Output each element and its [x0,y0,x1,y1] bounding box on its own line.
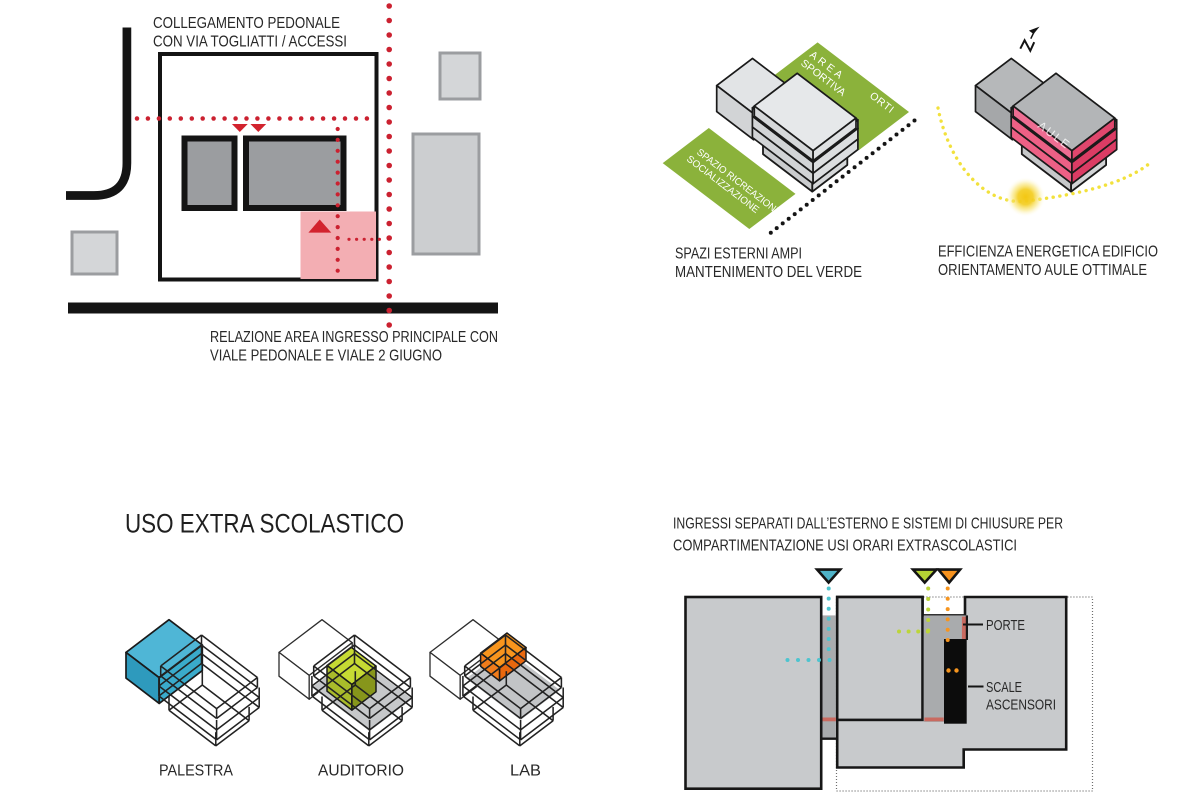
svg-text:AUDITORIO: AUDITORIO [318,763,404,780]
svg-text:INGRESSI SEPARATI DALL’ESTERNO: INGRESSI SEPARATI DALL’ESTERNO E SISTEMI… [673,516,1063,533]
svg-text:COLLEGAMENTO PEDONALE: COLLEGAMENTO PEDONALE [153,15,340,32]
svg-text:PORTE: PORTE [986,617,1025,634]
svg-text:ORIENTAMENTO AULE OTTIMALE: ORIENTAMENTO AULE OTTIMALE [938,262,1147,279]
svg-text:SCALE: SCALE [986,679,1022,696]
svg-text:VIALE PEDONALE E VIALE 2 GIUGN: VIALE PEDONALE E VIALE 2 GIUGNO [210,348,442,365]
svg-text:PALESTRA: PALESTRA [159,763,233,780]
svg-text:MANTENIMENTO DEL VERDE: MANTENIMENTO DEL VERDE [675,264,862,281]
svg-text:USO EXTRA SCOLASTICO: USO EXTRA SCOLASTICO [125,509,404,539]
svg-text:CON VIA TOGLIATTI / ACCESSI: CON VIA TOGLIATTI / ACCESSI [153,34,347,51]
svg-text:SPAZI ESTERNI AMPI: SPAZI ESTERNI AMPI [675,246,802,263]
svg-text:LAB: LAB [510,763,541,780]
svg-text:ASCENSORI: ASCENSORI [986,697,1056,714]
svg-text:RELAZIONE AREA INGRESSO PRINCI: RELAZIONE AREA INGRESSO PRINCIPALE CON [210,329,498,346]
svg-text:COMPARTIMENTAZIONE USI ORARI E: COMPARTIMENTAZIONE USI ORARI EXTRASCOLAS… [673,538,1017,555]
svg-text:EFFICIENZA ENERGETICA EDIFICIO: EFFICIENZA ENERGETICA EDIFICIO [938,244,1158,261]
